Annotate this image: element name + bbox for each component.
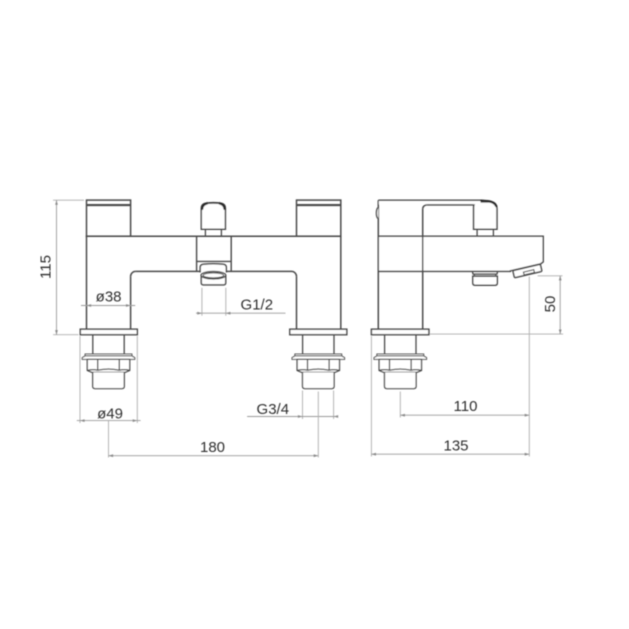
svg-text:G3/4: G3/4 xyxy=(257,401,290,418)
svg-text:ø49: ø49 xyxy=(97,405,123,422)
svg-text:ø38: ø38 xyxy=(96,289,122,306)
svg-text:180: 180 xyxy=(200,439,225,456)
svg-text:50: 50 xyxy=(542,296,559,313)
svg-text:G1/2: G1/2 xyxy=(241,297,274,314)
svg-text:110: 110 xyxy=(454,398,478,415)
svg-text:115: 115 xyxy=(37,255,54,279)
svg-text:135: 135 xyxy=(443,438,468,455)
